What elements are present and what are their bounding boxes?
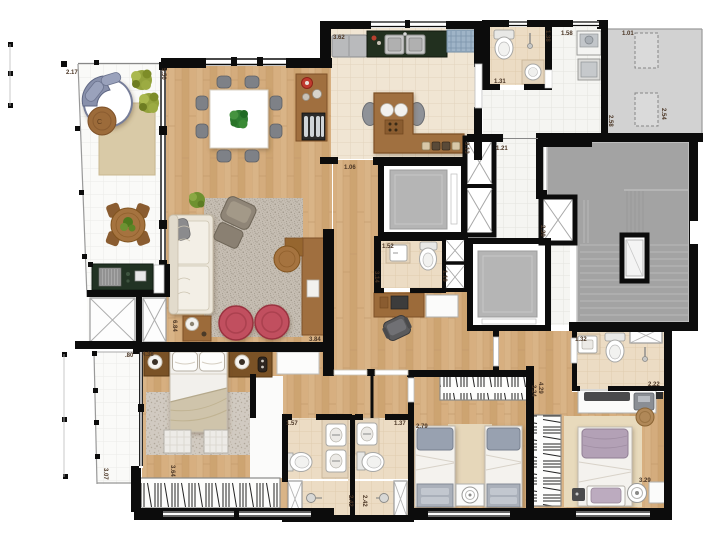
svg-text:3.29: 3.29 <box>639 478 651 484</box>
svg-text:2.42: 2.42 <box>347 495 353 507</box>
svg-text:6.84: 6.84 <box>171 320 177 332</box>
svg-text:4.38: 4.38 <box>142 352 154 358</box>
svg-text:1.38: 1.38 <box>544 30 550 42</box>
svg-text:1.31: 1.31 <box>494 79 506 85</box>
svg-text:4.29: 4.29 <box>537 382 543 394</box>
svg-text:1.32: 1.32 <box>575 337 587 343</box>
svg-text:1.21: 1.21 <box>496 146 508 152</box>
svg-text:2.54: 2.54 <box>660 108 666 120</box>
svg-text:2.79: 2.79 <box>416 424 428 430</box>
svg-text:2.22: 2.22 <box>648 382 660 388</box>
svg-text:1.01: 1.01 <box>622 31 634 37</box>
svg-text:1.57: 1.57 <box>286 421 298 427</box>
svg-text:.80: .80 <box>125 353 134 359</box>
svg-text:2.17: 2.17 <box>66 70 78 76</box>
svg-text:3.62: 3.62 <box>333 35 345 41</box>
svg-text:1.06: 1.06 <box>344 165 356 171</box>
svg-text:1.52: 1.52 <box>382 244 394 250</box>
svg-text:1.37: 1.37 <box>394 421 406 427</box>
svg-text:3.07: 3.07 <box>102 468 108 480</box>
svg-text:3.24: 3.24 <box>530 385 536 397</box>
svg-text:3.13: 3.13 <box>463 142 469 154</box>
svg-text:2.58: 2.58 <box>607 115 613 127</box>
svg-text:3.64: 3.64 <box>169 465 175 477</box>
svg-text:1.58: 1.58 <box>561 31 573 37</box>
svg-text:2.30: 2.30 <box>539 225 545 237</box>
svg-text:3.84: 3.84 <box>309 337 321 343</box>
svg-text:C: C <box>97 119 102 126</box>
svg-text:3.14: 3.14 <box>373 271 379 283</box>
svg-text:5.50: 5.50 <box>160 68 166 80</box>
svg-text:2.42: 2.42 <box>361 495 367 507</box>
svg-text:1.19: 1.19 <box>441 270 447 282</box>
